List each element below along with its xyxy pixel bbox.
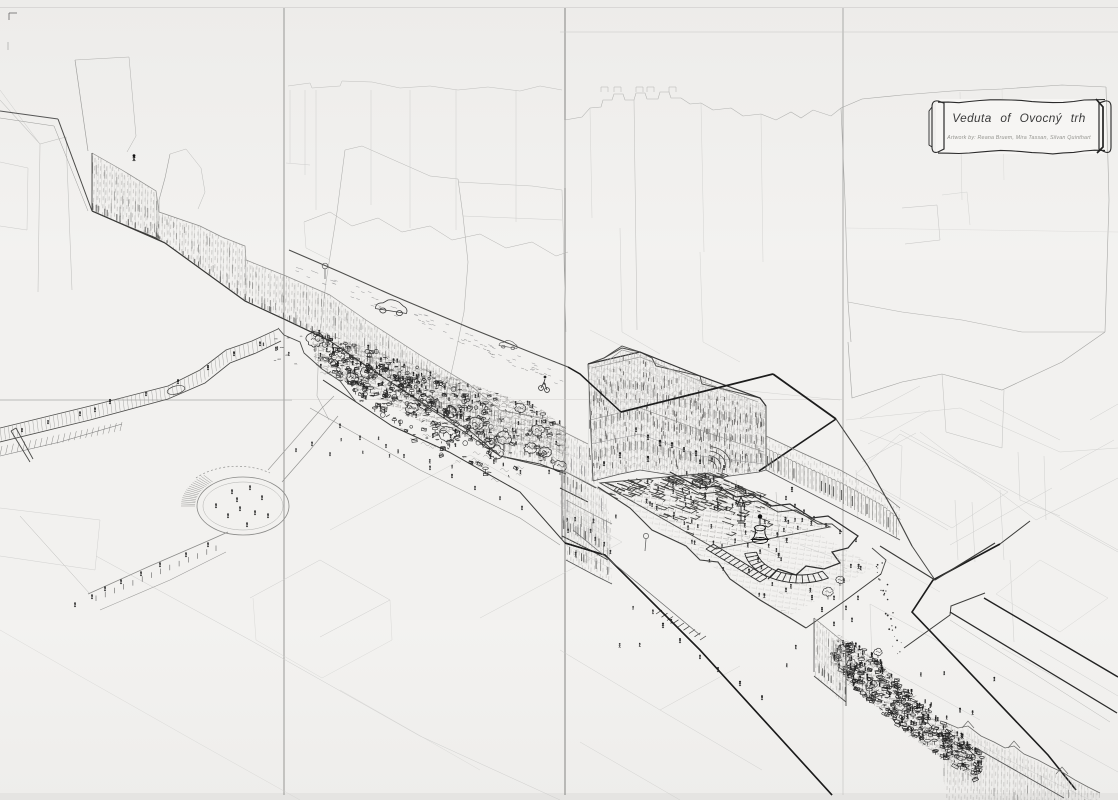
svg-text:Artwork by: Reana Bruem, Mira: Artwork by: Reana Bruem, Mira Tassan, Si… (946, 135, 1091, 141)
svg-text:Veduta of Ovocný trh: Veduta of Ovocný trh (952, 111, 1085, 125)
